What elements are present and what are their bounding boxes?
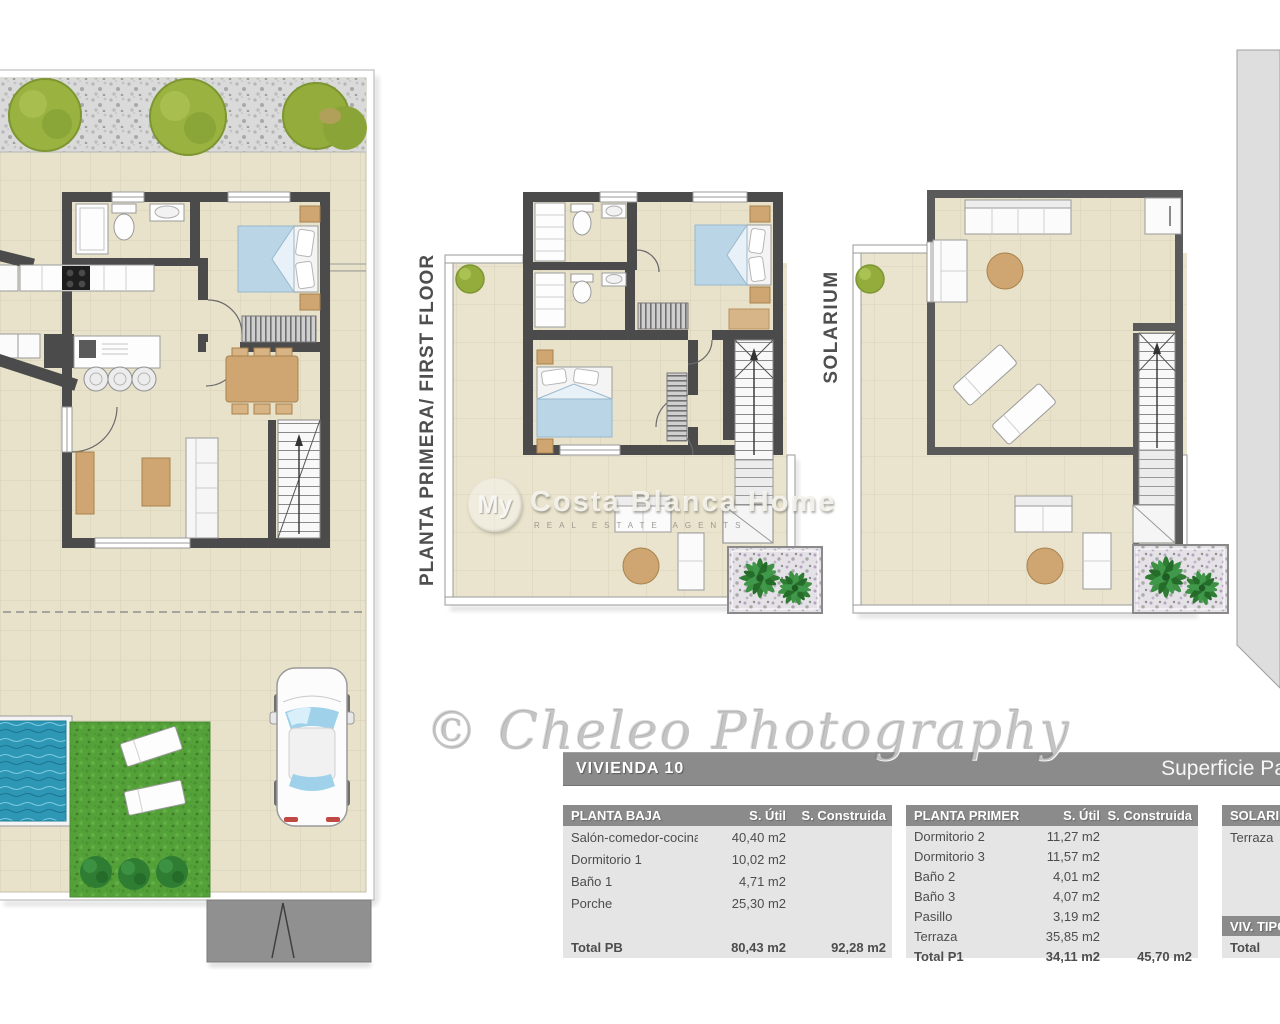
cell-util: 40,40 m2 (698, 830, 786, 845)
toilet-icon (112, 204, 136, 240)
first-floor-label: PLANTA PRIMERA/ FIRST FLOOR (417, 256, 439, 586)
stairs-icon (278, 420, 320, 538)
floorplan-flyer: PLANTA PRIMERA/ FIRST FLOOR SOLARIUM © C… (0, 0, 1280, 1024)
cell-label: Dormitorio 2 (906, 829, 1020, 844)
table-subheader: VIV. TIPO (1222, 916, 1280, 936)
bush-icon (856, 265, 884, 293)
solarium-plan (853, 190, 1228, 618)
table-row: Pasillo 3,19 m2 (906, 906, 1198, 926)
table-header: PLANTA PRIMERA S. Útil S. Construida (906, 805, 1198, 826)
sofa-icon (965, 200, 1071, 234)
table-row: Dormitorio 2 11,27 m2 (906, 826, 1198, 846)
double-bed-icon (238, 226, 318, 292)
brand-name: Costa Blanca Home (530, 486, 836, 519)
cell-label: Total P1 (906, 949, 1020, 964)
bench-icon (678, 533, 704, 590)
table-row: Baño 3 4,07 m2 (906, 886, 1198, 906)
ground-floor-plan (0, 70, 379, 967)
double-bed-icon (537, 367, 612, 437)
table-header: PLANTA BAJA S. Útil S. Construida (563, 805, 892, 826)
round-table-icon (1027, 548, 1063, 584)
table-row: Dormitorio 3 11,57 m2 (906, 846, 1198, 866)
cell-construida: 92,28 m2 (786, 940, 892, 955)
cell-label: Baño 2 (906, 869, 1020, 884)
table-planta-primera: PLANTA PRIMERA S. Útil S. Construida Dor… (906, 805, 1198, 958)
nightstand-icon (300, 206, 320, 222)
dwelling-title: VIVIENDA 10 (563, 760, 684, 778)
nightstand-icon (537, 350, 553, 364)
stairs-icon (1133, 333, 1175, 543)
cell-util: 35,85 m2 (1020, 929, 1100, 944)
sink-icon (602, 273, 626, 286)
table-total-row: Total P1 34,11 m2 45,70 m2 (906, 946, 1198, 966)
cell-label: Baño 3 (906, 889, 1020, 904)
cabinet-icon (1145, 198, 1181, 234)
nightstand-icon (300, 294, 320, 310)
palm-plant-icon (740, 558, 780, 598)
double-bed-icon (695, 225, 771, 285)
cell-label: Dormitorio 1 (563, 852, 698, 867)
cell-util: 11,27 m2 (1020, 829, 1100, 844)
stool-icon (132, 367, 156, 391)
sideboard-icon (76, 452, 94, 514)
cell-util: 3,19 m2 (1020, 909, 1100, 924)
planter-box (728, 547, 822, 613)
cell-label: Salón-comedor-cocina (563, 830, 698, 845)
cell-construida: 45,70 m2 (1100, 949, 1198, 964)
neighbor-building (1237, 50, 1280, 688)
table-title: PLANTA BAJA (563, 808, 698, 823)
swimming-pool (0, 721, 66, 821)
wardrobe-icon (242, 316, 316, 342)
planter-box (1133, 545, 1228, 613)
cell-util: 10,02 m2 (698, 852, 786, 867)
shrub-icon (80, 856, 188, 890)
stool-icon (108, 367, 132, 391)
table-row: Dormitorio 1 10,02 m2 (563, 848, 892, 870)
bush-icon (9, 79, 81, 151)
column-header-construida: S. Construida (1100, 808, 1198, 823)
cell-util: 34,11 m2 (1020, 949, 1100, 964)
toilet-icon (571, 274, 593, 303)
cell-label: Total PB (563, 940, 698, 955)
cell-label: Porche (563, 896, 698, 911)
toilet-icon (571, 204, 593, 235)
table-header: SOLARIUM (1222, 805, 1280, 826)
cell-label: Terraza (1222, 830, 1280, 845)
surface-heading: Superficie Pa (1161, 757, 1280, 781)
sofa-icon (186, 438, 218, 538)
cell-label: Pasillo (906, 909, 1020, 924)
column-header-util: S. Útil (1020, 808, 1100, 823)
watermark-photography: © Cheleo Photography (426, 702, 1071, 762)
watermark-brand: My Costa Blanca Home REAL ESTATE AGENTS (468, 478, 836, 532)
table-total-row: Total PB 80,43 m2 92,28 m2 (563, 936, 892, 958)
car-icon (270, 668, 354, 826)
stool-icon (84, 367, 108, 391)
table-row: Baño 2 4,01 m2 (906, 866, 1198, 886)
sink-icon (602, 204, 626, 218)
cell-util: 4,71 m2 (698, 874, 786, 889)
brand-circle: My (468, 478, 522, 532)
table-row: Salón-comedor-cocina 40,40 m2 (563, 826, 892, 848)
solarium-label: SOLARIUM (821, 252, 843, 402)
cell-label: Terraza (906, 929, 1020, 944)
brand-tagline: REAL ESTATE AGENTS (530, 521, 836, 530)
table-planta-baja: PLANTA BAJA S. Útil S. Construida Salón-… (563, 805, 892, 958)
subheader-label: VIV. TIPO (1222, 919, 1280, 934)
column-header-construida: S. Construida (786, 808, 892, 823)
driveway (207, 900, 371, 967)
dining-area (226, 348, 298, 414)
sink-icon (150, 204, 184, 221)
cell-util: 4,07 m2 (1020, 889, 1100, 904)
shower-icon (535, 203, 565, 261)
table-row: Baño 1 4,71 m2 (563, 870, 892, 892)
wardrobe-icon (638, 303, 688, 329)
cell-label: Baño 1 (563, 874, 698, 889)
table-title: SOLARIUM (1222, 808, 1280, 823)
column-header-util: S. Útil (698, 808, 786, 823)
wardrobe-icon (667, 373, 687, 441)
round-table-icon (623, 548, 659, 584)
round-table-icon (987, 253, 1023, 289)
nightstand-icon (750, 287, 770, 303)
table-total-row: Total (1222, 936, 1280, 958)
table-title: PLANTA PRIMERA (906, 808, 1020, 823)
palm-plant-icon (1145, 556, 1187, 598)
table-row: Terraza (1222, 826, 1280, 848)
shower-icon (535, 273, 565, 327)
first-floor-plan (445, 192, 822, 613)
coffee-table-icon (142, 458, 170, 506)
bedroom (238, 206, 320, 342)
cell-util: 4,01 m2 (1020, 869, 1100, 884)
cell-label: Total (1222, 940, 1280, 955)
table-solarium: SOLARIUM Terraza VIV. TIPO Total (1222, 805, 1280, 958)
sofa-icon (1015, 496, 1072, 532)
stove-icon (62, 266, 90, 290)
dining-table-icon (226, 356, 298, 402)
table-row: Terraza 35,85 m2 (906, 926, 1198, 946)
armchair-icon (933, 240, 967, 302)
bush-icon (150, 79, 226, 155)
nightstand-icon (750, 206, 770, 222)
cell-label: Dormitorio 3 (906, 849, 1020, 864)
cell-util: 25,30 m2 (698, 896, 786, 911)
bush-icon (456, 265, 484, 293)
table-row: Porche 25,30 m2 (563, 892, 892, 914)
doormat-icon (729, 309, 769, 329)
shower-icon (76, 204, 108, 254)
cell-util: 80,43 m2 (698, 940, 786, 955)
coffee-maker-icon (79, 340, 96, 358)
nightstand-icon (537, 439, 553, 453)
cell-util: 11,57 m2 (1020, 849, 1100, 864)
bench-icon (1083, 533, 1111, 589)
